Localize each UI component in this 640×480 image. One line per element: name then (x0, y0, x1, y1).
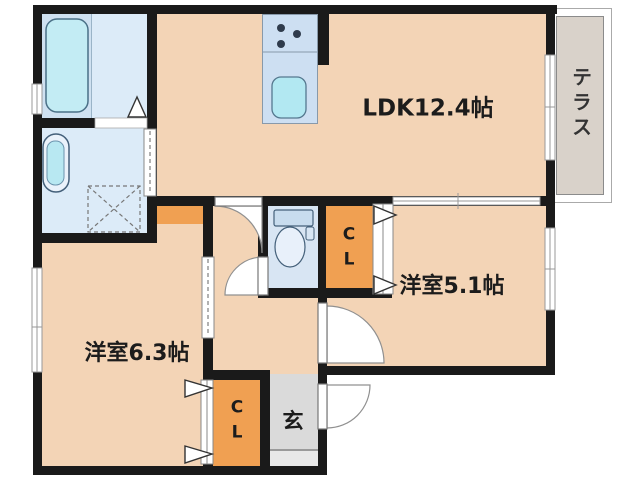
washbasin-bowl (47, 141, 64, 185)
sliding-door-washroom (144, 129, 156, 196)
label-ldk: LDK12.4帖 (362, 92, 493, 125)
label-entrance: 玄 (283, 406, 304, 436)
label-bedroom-right: 洋室5.1帖 (400, 271, 505, 303)
floorplan: LDK12.4帖 洋室5.1帖 洋室6.3帖 テラス 玄 C L C L (0, 0, 640, 480)
label-closet-bottom: C L (231, 395, 243, 444)
bath-doorway (95, 118, 147, 128)
door-leaf-entrance (318, 384, 327, 429)
door-arc-hall (215, 206, 262, 253)
toilet-icon (274, 210, 314, 267)
window-bedroom-right (545, 228, 555, 310)
sliding-door-bedroom-left (202, 257, 214, 338)
fixtures-layer (0, 0, 640, 480)
window-ldk-right (545, 55, 555, 160)
label-terrace: テラス (566, 67, 595, 142)
door-arc-entrance (327, 385, 370, 428)
window-ldk-bedroom-divider (393, 193, 540, 209)
door-arc-bedroom-right (327, 306, 384, 363)
label-closet-right: C L (343, 222, 355, 271)
door-leaf-bedroom-right (318, 303, 327, 363)
window-bath-left (32, 84, 42, 114)
kitchen-sink-icon (272, 77, 306, 118)
washing-machine-pan-icon (88, 186, 140, 232)
stove-burners-icon (277, 24, 301, 48)
door-arc-toilet (225, 257, 263, 295)
bath-door-triangle (128, 97, 146, 117)
window-bedroom-left (32, 268, 42, 372)
bathtub-icon (46, 19, 88, 112)
door-leaf-toilet (258, 257, 268, 295)
label-bedroom-left: 洋室6.3帖 (85, 338, 190, 370)
door-leaf-hall (215, 197, 262, 206)
